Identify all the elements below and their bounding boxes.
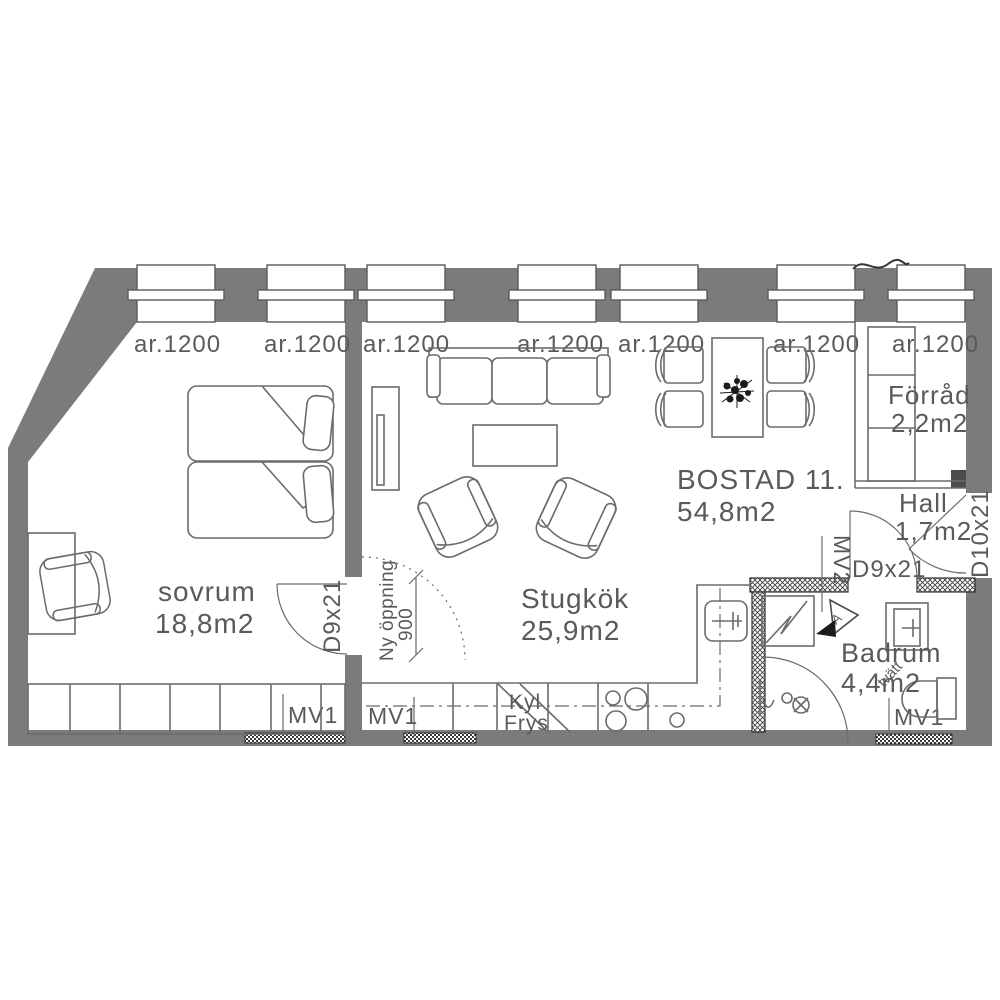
interior-wall-sovrum-stugkok [343,322,364,730]
room-area-hall: 1,7m2 [895,516,972,546]
washbasin [760,681,809,715]
vent-label-mv1: MV1 [288,702,338,728]
bedroom-door: D9x21 [277,579,347,654]
room-area-stugkok: 25,9m2 [521,615,620,646]
floor-plan-page: ar.1200 ar.1200 ar.1200 ar.1200 ar.1200 … [0,0,1000,1000]
window-label: ar.1200 [264,331,351,358]
window-label: ar.1200 [517,331,604,358]
pillow [303,465,335,523]
new-opening-text: Ny öppning [377,560,398,661]
room-area-sovrum: 18,8m2 [155,608,254,639]
vent-label-mv1: MV1 [368,703,418,729]
new-opening-size: 900 [396,608,417,641]
stove-burner [625,688,647,710]
room-area-forrad: 2,2m2 [891,408,968,438]
room-label-sovrum: sovrum [158,576,256,607]
dining-chair [767,391,814,427]
window-3 [358,265,454,322]
fridge-label-line1: Kyl [509,691,541,714]
room-label-forrad: Förråd [888,380,971,410]
sofa-armrest [597,355,610,397]
window-2 [258,265,354,322]
window-7 [888,265,974,322]
sink-drain [670,713,684,727]
armchair-left [414,472,503,562]
new-opening-dimension: Ny öppning 900 [362,557,465,662]
room-label-hall: Hall [899,488,948,518]
coffee-table [473,425,557,466]
window-4 [509,265,605,322]
window-labels: ar.1200 ar.1200 ar.1200 ar.1200 ar.1200 … [134,331,979,358]
window-label: ar.1200 [618,331,705,358]
room-area-badrum: 4,4m2 [841,668,921,698]
room-label-stugkok: Stugkök [521,583,629,614]
bed [188,386,335,538]
wall-jamb-block [951,470,966,488]
dining-chair [656,391,703,427]
room-label-badrum: Badrum [841,638,942,668]
bookshelf [372,387,399,490]
armchair-right [532,473,621,563]
fridge-label-line2: Frys [504,712,549,735]
window-label: ar.1200 [134,331,221,358]
window-6 [768,265,864,322]
window-1 [128,265,224,322]
floor-plan-canvas: ar.1200 ar.1200 ar.1200 ar.1200 ar.1200 … [0,0,1000,1000]
unit-area: 54,8m2 [677,496,776,527]
bathroom-door-label: D9x21 [852,556,926,583]
plant [720,375,754,408]
window-5 [611,265,707,322]
stove-burner [606,711,626,731]
unit-label: BOSTAD 11. [677,464,845,495]
vent-label-mv2: MV2 [829,535,855,585]
window-label: ar.1200 [363,331,450,358]
stove-burner [606,691,620,705]
window-label: ar.1200 [773,331,860,358]
bedroom-door-label: D9x21 [319,579,346,653]
pillow [302,395,334,452]
sofa-armrest [427,355,440,397]
window-label: ar.1200 [892,331,979,358]
